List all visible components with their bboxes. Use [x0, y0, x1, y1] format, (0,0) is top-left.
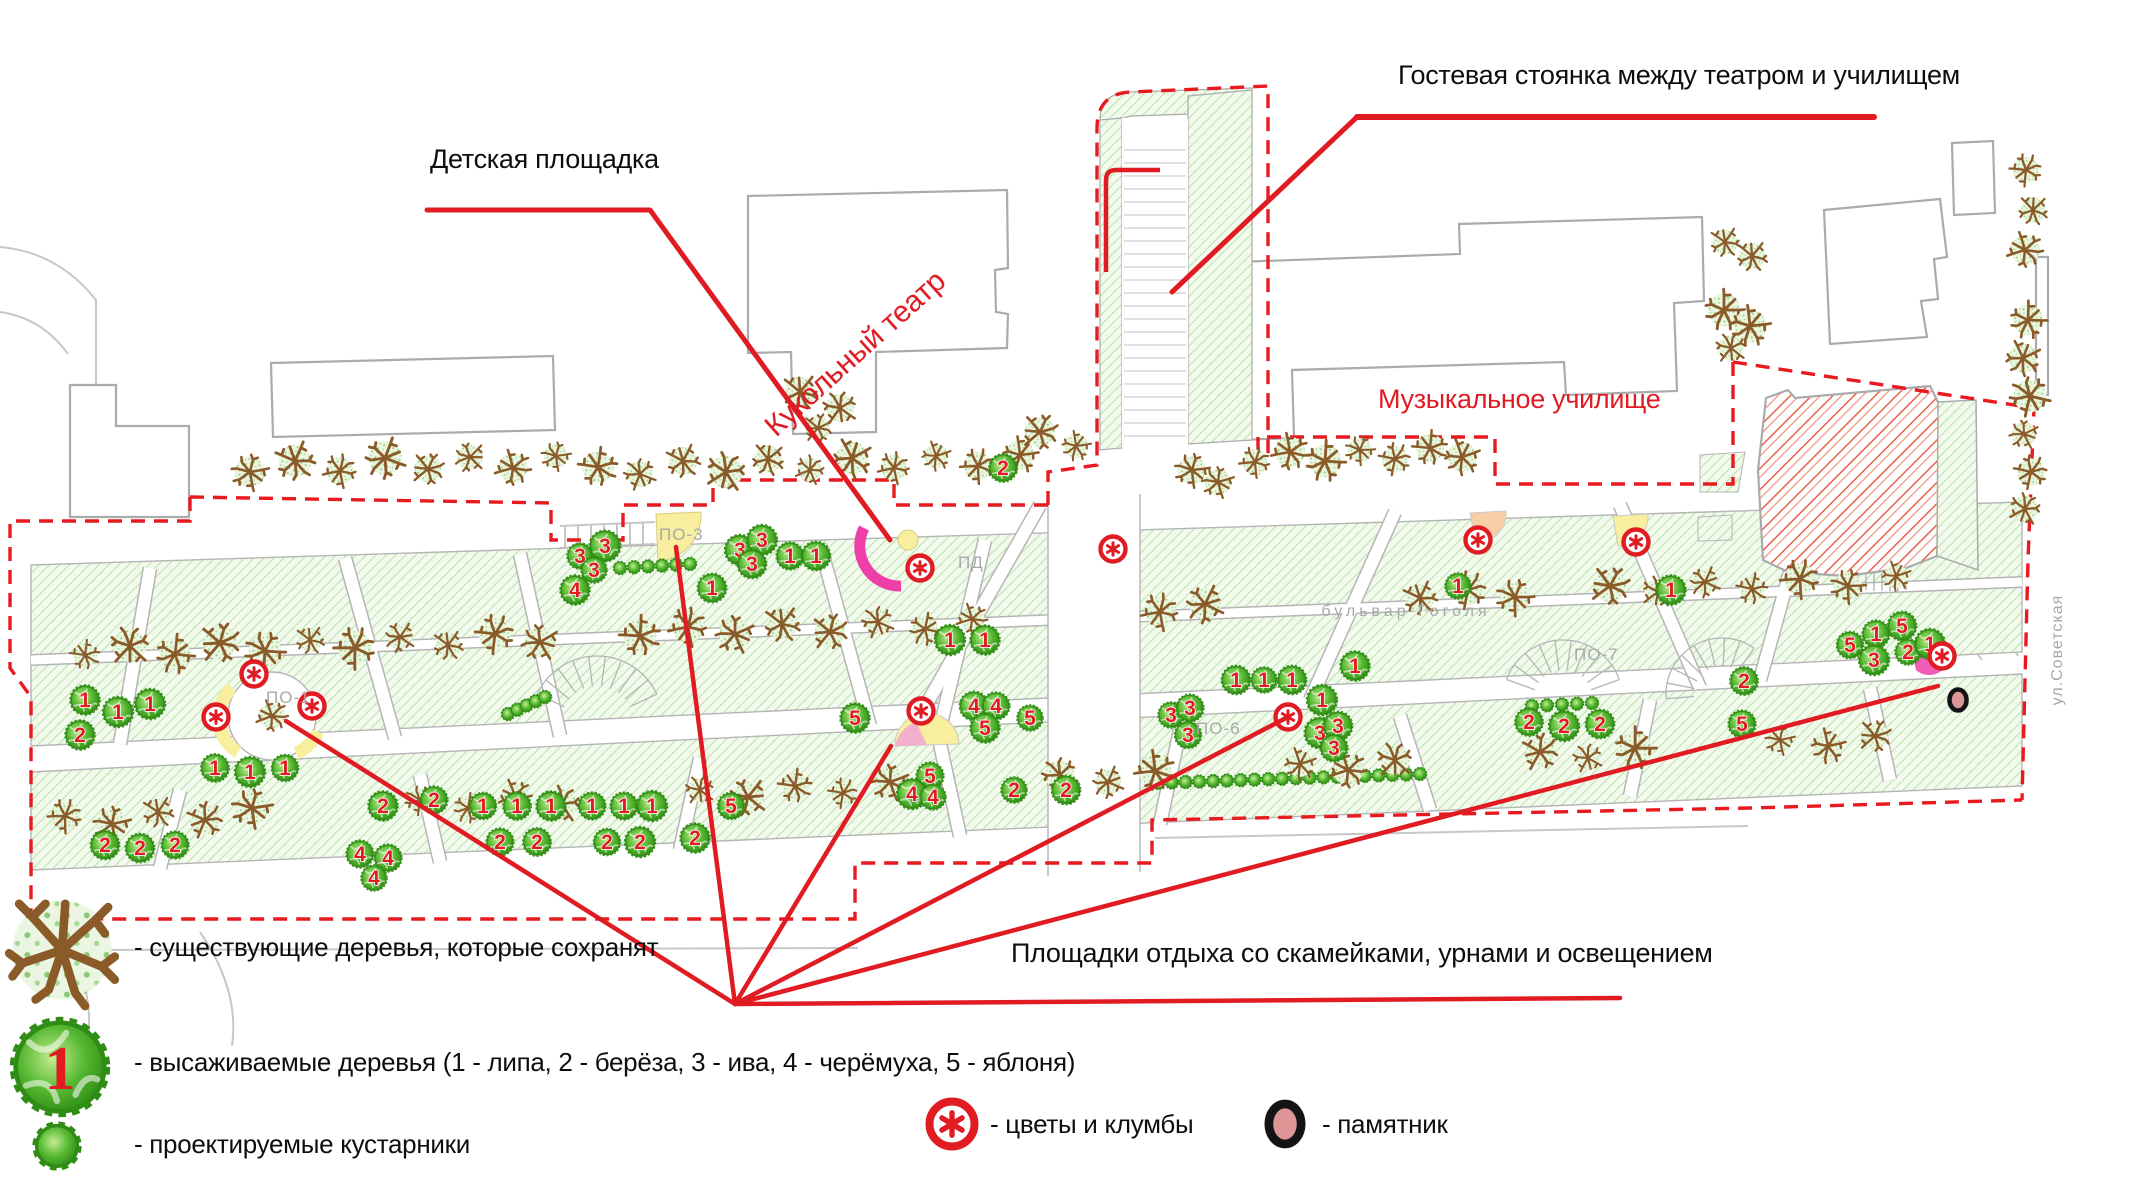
planted-tree-species-number: 3: [1182, 724, 1194, 747]
planted-tree-species-number: 1: [1258, 669, 1270, 692]
existing-tree: [753, 445, 784, 476]
flowerbed-marker-icon: [1930, 644, 1955, 669]
planted-tree-species-number: 4: [906, 783, 918, 806]
planted-tree-species-number: 2: [428, 789, 440, 812]
shrub: [1585, 696, 1599, 710]
existing-tree: [455, 443, 483, 471]
planted-tree-species-number: 2: [1594, 713, 1606, 736]
shrub: [655, 559, 669, 573]
planted-tree-species-number: 2: [1738, 670, 1750, 693]
legend-monument-text: - памятник: [1322, 1111, 1448, 1137]
shrub: [1275, 772, 1289, 786]
shrub: [641, 560, 655, 574]
planted-tree-species-number: 3: [588, 559, 600, 582]
planted-tree-species-number: 1: [979, 629, 991, 652]
existing-tree-icon: [9, 901, 115, 1007]
flowerbed-marker-icon: [909, 699, 934, 724]
planted-tree-species-number: 3: [599, 535, 611, 558]
planted-tree-species-number: 2: [634, 831, 646, 854]
planted-tree-species-number: 3: [756, 529, 768, 552]
planted-tree-species-number: 3: [1184, 697, 1196, 720]
building-northeast: [1824, 199, 1947, 344]
existing-tree: [360, 434, 408, 482]
existing-tree: [1409, 427, 1451, 469]
planted-tree-species-number: 4: [354, 843, 366, 866]
shrub: [683, 557, 697, 571]
existing-tree: [1058, 429, 1094, 465]
rest-areas-label: Площадки отдыха со скамейками, урнами и …: [1011, 940, 1713, 967]
shrub: [1248, 773, 1262, 787]
planted-tree-species-number: 1: [1665, 579, 1677, 602]
existing-tree: [493, 447, 535, 489]
planted-tree-species-number: 1: [944, 629, 956, 652]
planted-tree-species-number: 2: [531, 831, 543, 854]
shrub: [613, 561, 627, 575]
planted-tree-species-number: 2: [377, 795, 389, 818]
shrub: [1540, 698, 1554, 712]
planted-tree-number-badge: 1: [45, 1035, 76, 1103]
planted-tree-species-number: 2: [1060, 779, 1072, 802]
building-long-upper: [271, 356, 555, 437]
hatched-building: [1758, 386, 1941, 576]
planted-tree-species-number: 2: [134, 837, 146, 860]
planted-tree-species-number: 3: [746, 553, 758, 576]
planted-tree-species-number: 1: [545, 795, 557, 818]
existing-tree: [272, 439, 318, 485]
planted-tree-species-number: 1: [706, 577, 718, 600]
rest-areas-leader-line: [735, 998, 1620, 1004]
planted-tree-species-number: 2: [1558, 715, 1570, 738]
shrub: [1193, 775, 1207, 789]
flowerbed-marker-icon: [1466, 528, 1491, 553]
area-code-label: ПО-3: [659, 525, 704, 544]
planted-tree-species-number: 4: [968, 695, 980, 718]
planted-tree-species-number: 4: [927, 786, 939, 809]
planted-tree-species-number: 1: [79, 689, 91, 712]
legend-shrubs-text: - проектируемые кустарники: [134, 1131, 470, 1157]
planted-tree-species-number: 5: [1896, 615, 1908, 638]
planted-tree-species-number: 1: [144, 693, 156, 716]
landscape-plan-canvas: 1112111222444333433311122111221112252544…: [0, 0, 2148, 1179]
existing-tree: [706, 451, 746, 491]
planted-tree-species-number: 1: [646, 795, 658, 818]
guest-parking-label: Гостевая стоянка между театром и училище…: [1398, 62, 1960, 89]
shrub: [1372, 769, 1386, 783]
planted-tree-species-number: 5: [725, 795, 737, 818]
planted-tree-species-number: 5: [1736, 713, 1748, 736]
planted-tree-species-number: 1: [618, 795, 630, 818]
flowerbed-marker-icon: [1624, 530, 1649, 555]
planted-tree-species-number: 5: [849, 707, 861, 730]
planted-tree-species-number: 1: [1452, 575, 1464, 598]
planted-tree-species-number: 2: [601, 831, 613, 854]
planted-tree-species-number: 1: [1316, 689, 1328, 712]
planted-tree-species-number: 1: [209, 757, 221, 780]
shrub: [1220, 774, 1234, 788]
planted-tree-species-number: 1: [784, 545, 796, 568]
legend-flowers-text: - цветы и клумбы: [990, 1111, 1193, 1137]
shrub: [538, 690, 552, 704]
flowerbed-marker-icon: [242, 662, 267, 687]
planted-tree-species-number: 1: [1286, 669, 1298, 692]
planted-tree-species-number: 2: [99, 834, 111, 857]
shrub-icon: [34, 1123, 80, 1169]
planted-tree-species-number: 4: [569, 579, 581, 602]
existing-tree: [227, 449, 272, 494]
planted-tree-species-number: 5: [1024, 707, 1036, 730]
planted-tree-species-number: 1: [477, 795, 489, 818]
area-code-label: ПД: [958, 553, 984, 572]
shrub: [1317, 771, 1331, 785]
existing-tree: [831, 438, 873, 480]
shrub: [1262, 772, 1276, 786]
planted-tree-species-number: 1: [112, 701, 124, 724]
playground-label: Детская площадка: [430, 146, 659, 173]
existing-tree: [621, 455, 658, 492]
planted-tree-species-number: 1: [1349, 655, 1361, 678]
shrub: [1206, 774, 1220, 788]
monument-icon: [1269, 1104, 1301, 1144]
shrub: [627, 560, 641, 574]
street-name-label: ул.Советская: [2049, 595, 2066, 706]
fan-step-line: [1591, 679, 1619, 689]
flowerbed-marker-icon: [908, 556, 933, 581]
planted-tree-species-number: 4: [990, 695, 1002, 718]
planted-tree-species-number: 3: [1165, 704, 1177, 727]
existing-tree: [1709, 227, 1741, 259]
existing-tree: [2007, 418, 2039, 450]
planted-tree-species-number: 3: [1328, 737, 1340, 760]
planted-tree-species-number: 2: [494, 831, 506, 854]
building-topright-small: [1952, 141, 1995, 215]
planted-tree-species-number: 1: [1230, 669, 1242, 692]
planted-tree-species-number: 2: [1523, 711, 1535, 734]
planted-tree-species-number: 1: [810, 545, 822, 568]
site-plan-svg: 1112111222444333433311122111221112252544…: [0, 0, 2148, 1179]
fan-step-line: [1507, 679, 1535, 689]
planted-tree-species-number: 1: [244, 761, 256, 784]
shrub: [1179, 775, 1193, 789]
planting-areas: [31, 502, 2022, 870]
planted-tree-species-number: 1: [511, 795, 523, 818]
flowerbed-marker-icon: [204, 705, 229, 730]
legend-existing-trees-text: - существующие деревья, которые сохранят: [134, 934, 658, 960]
music-college-label: Музыкальное училище: [1378, 386, 1660, 413]
existing-tree: [538, 438, 574, 474]
guest-parking-lot: [1100, 88, 1252, 450]
existing-tree: [414, 454, 445, 485]
legend-planted-trees-text: - высаживаемые деревья (1 - липа, 2 - бе…: [134, 1049, 1075, 1075]
planted-tree-species-number: 2: [74, 724, 86, 747]
planted-tree-species-number: 4: [368, 867, 380, 890]
shrub: [1234, 773, 1248, 787]
planted-tree-species-number: 2: [169, 834, 181, 857]
area-code-label: ПО-6: [1196, 719, 1241, 738]
planted-tree-species-number: 1: [586, 795, 598, 818]
shrub: [1555, 698, 1569, 712]
flowerbed-marker-icon: [1101, 537, 1126, 562]
planted-tree-species-number: 2: [997, 457, 1009, 480]
existing-tree: [575, 444, 622, 491]
street-name-label: бульвар Гоголя: [1321, 603, 1490, 620]
shrub: [1413, 767, 1427, 781]
planted-tree-species-number: 1: [279, 757, 291, 780]
existing-tree: [1376, 439, 1415, 478]
shrub: [1570, 697, 1584, 711]
monument-icon: [1950, 690, 1967, 711]
existing-tree: [1300, 437, 1349, 486]
existing-tree: [794, 453, 827, 486]
planted-tree-species-number: 2: [689, 827, 701, 850]
area-code-label: ПО-7: [1574, 645, 1619, 664]
flower-icon: [930, 1102, 975, 1147]
existing-tree: [1736, 241, 1767, 272]
building-left-small: [70, 385, 189, 517]
area-code-label: ПО-1: [266, 688, 311, 707]
existing-tree: [2019, 197, 2046, 224]
planted-tree-species-number: 3: [1868, 649, 1880, 672]
planted-tree-species-number: 2: [1008, 779, 1020, 802]
existing-tree: [320, 450, 360, 490]
existing-tree: [664, 443, 703, 482]
planted-tree-species-number: 5: [979, 717, 991, 740]
planted-tree-species-number: 4: [382, 847, 394, 870]
planted-tree-species-number: 2: [1902, 641, 1914, 664]
planted-tree-species-number: 5: [1844, 634, 1856, 657]
planted-tree-species-number: 1: [1870, 623, 1882, 646]
existing-tree: [919, 440, 953, 474]
existing-tree: [2007, 150, 2046, 189]
